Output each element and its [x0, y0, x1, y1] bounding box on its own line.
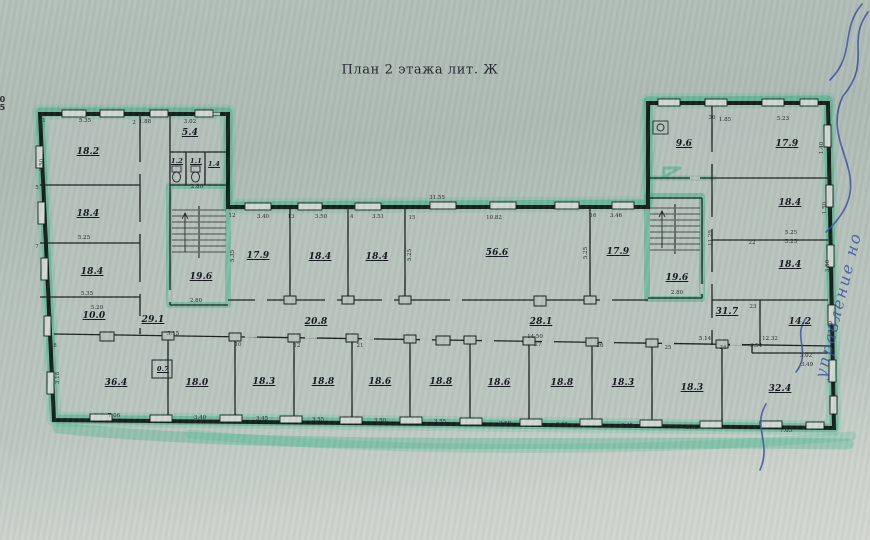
room-number-tag: 22 — [749, 240, 756, 246]
room-number-tag: 25 — [665, 345, 672, 351]
dimension-label: 5.25 — [78, 235, 90, 241]
dimension-label: 3.50 — [315, 214, 327, 220]
room-area-label: 0.7 — [157, 365, 169, 373]
dimension-label: 5.20 — [91, 305, 103, 311]
room-number-tag: 21 — [357, 343, 364, 349]
room-number-tag: 13 — [288, 214, 295, 220]
dimension-label: 5.25 — [407, 249, 413, 261]
dimension-label: 3.46 — [610, 213, 622, 219]
dimension-label: 5.23 — [777, 116, 789, 122]
room-area-label: 36.4 — [105, 378, 128, 388]
dimension-label: 3.51 — [372, 214, 384, 220]
dimension-label: 3.18 — [55, 372, 61, 384]
room-area-label: 18.3 — [253, 377, 276, 387]
room-area-label: 56.6 — [486, 248, 509, 258]
room-area-label: 18.4 — [779, 198, 802, 208]
room-number-tag: 30 — [709, 115, 716, 121]
label-layer: План 2 этажа лит. Ж 20 45 управление но … — [0, 0, 870, 540]
dimension-label: 5.35 — [230, 250, 236, 262]
room-area-label: 18.4 — [366, 252, 389, 262]
dimension-label: 3.45 — [621, 423, 633, 429]
room-number-tag: 26 — [597, 343, 604, 349]
room-area-label: 17.9 — [247, 251, 270, 261]
dimension-label: 3.45 — [256, 416, 268, 422]
room-area-label: 29.1 — [142, 315, 165, 325]
dimension-label: 1.50 — [822, 202, 828, 214]
room-area-label: 18.6 — [369, 377, 392, 387]
dimension-label: 12.32 — [762, 336, 778, 342]
dimension-label: 14.50 — [527, 334, 543, 340]
dimension-label: 5.35 — [79, 118, 91, 124]
room-number-tag: 16 — [590, 213, 597, 219]
dimension-label: 3.55 — [312, 417, 324, 423]
dimension-label: 3.50 — [828, 321, 834, 333]
dimension-label: 1.88 — [139, 119, 151, 125]
handwritten-pen-note: управление но — [811, 230, 866, 380]
room-area-label: 17.9 — [607, 247, 630, 257]
room-area-label: 31.7 — [716, 307, 739, 317]
margin-note-line2: 45 — [0, 104, 5, 112]
dimension-label: 5.15 — [167, 331, 179, 337]
dimension-label: 3.50 — [825, 260, 831, 272]
room-number-tag: 7 — [35, 244, 39, 250]
room-area-label: 18.2 — [77, 147, 100, 157]
room-area-label: 1.2 — [171, 157, 183, 165]
room-number-tag: 12 — [229, 213, 236, 219]
room-area-label: 18.8 — [312, 377, 335, 387]
room-area-label: 18.4 — [309, 252, 332, 262]
room-area-label: 1.1 — [190, 157, 202, 165]
dimension-label: 5.25 — [785, 239, 797, 245]
dimension-label: 3.02 — [800, 353, 812, 359]
margin-note: 20 45 — [0, 96, 5, 112]
dimension-label: 7.05 — [780, 428, 792, 434]
dimension-label: 5.35 — [81, 291, 93, 297]
dimension-label: 3.02 — [184, 119, 196, 125]
room-number-tag: 10 — [235, 342, 242, 348]
room-area-label: 18.4 — [81, 267, 104, 277]
dimension-label: 3.40 — [194, 415, 206, 421]
room-area-label: 14.2 — [789, 317, 812, 327]
room-area-label: 20.8 — [305, 317, 328, 327]
dimension-label: 10.82 — [486, 215, 502, 221]
room-area-label: 1.4 — [208, 160, 220, 168]
room-number-tag: 14 — [347, 214, 354, 220]
dimension-label: 3.50 — [499, 421, 511, 427]
dimension-label: 2.80 — [191, 184, 203, 190]
room-number-tag: 1 — [42, 118, 46, 124]
dimension-label: 5.25 — [785, 230, 797, 236]
room-area-label: 9.6 — [676, 139, 692, 149]
room-number-tag: 2 — [132, 120, 136, 126]
dimension-label: 3.45 — [686, 425, 698, 431]
dimension-label: 3.50 — [39, 159, 45, 171]
dimension-label: 7.06 — [108, 413, 120, 419]
room-area-label: 32.4 — [769, 384, 792, 394]
dimension-label: 3.50 — [374, 418, 386, 424]
room-area-label: 5.4 — [182, 128, 198, 138]
room-area-label: 18.3 — [612, 378, 635, 388]
room-number-tag: 15 — [409, 215, 416, 221]
dimension-label: 11.29 — [708, 230, 714, 246]
room-area-label: 28.1 — [530, 317, 553, 327]
room-number-tag: 5 — [35, 185, 39, 191]
room-area-label: 17.9 — [776, 139, 799, 149]
dimension-label: 3.49 — [801, 362, 813, 368]
scanned-floor-plan-page: План 2 этажа лит. Ж 20 45 управление но … — [0, 0, 870, 540]
dimension-label: 3.55 — [556, 422, 568, 428]
room-area-label: 18.3 — [681, 383, 704, 393]
room-number-tag: 23 — [750, 304, 757, 310]
plan-title: План 2 этажа лит. Ж — [342, 63, 499, 78]
room-area-label: 18.8 — [551, 378, 574, 388]
room-area-label: 10.0 — [83, 311, 106, 321]
room-number-tag: 24 — [720, 345, 727, 351]
room-area-label: 19.6 — [666, 273, 689, 283]
dimension-label: 1.40 — [819, 142, 825, 154]
room-area-label: 18.6 — [488, 378, 511, 388]
dimension-label: 1.85 — [719, 117, 731, 123]
room-area-label: 18.4 — [77, 209, 100, 219]
dimension-label: 5.14 — [699, 336, 711, 342]
dimension-label: 3.54 — [750, 343, 762, 349]
room-number-tag: 12 — [294, 343, 301, 349]
room-area-label: 18.8 — [430, 377, 453, 387]
dimension-label: 2.80 — [671, 290, 683, 296]
room-number-tag: 8 — [53, 343, 57, 349]
dimension-label: 3.55 — [434, 419, 446, 425]
room-area-label: 18.0 — [186, 378, 209, 388]
room-number-tag: 27 — [535, 342, 542, 348]
room-area-label: 19.6 — [190, 272, 213, 282]
dimension-label: 5.25 — [583, 247, 589, 259]
dimension-label: 3.40 — [257, 214, 269, 220]
dimension-label: 31.55 — [429, 195, 445, 201]
dimension-label: 2.80 — [190, 298, 202, 304]
room-area-label: 18.4 — [779, 260, 802, 270]
